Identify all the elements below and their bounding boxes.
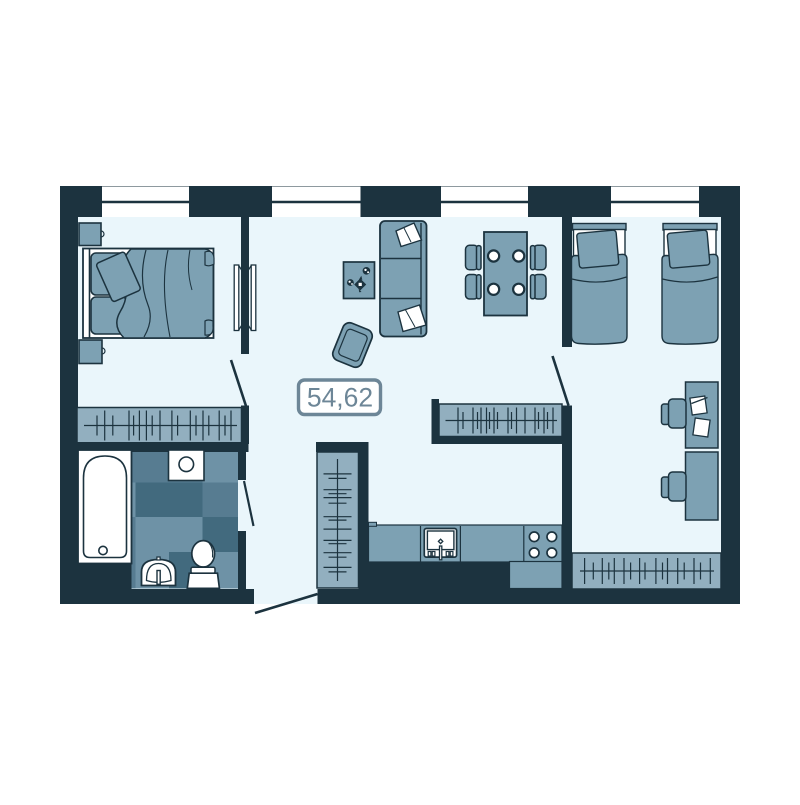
svg-text:54,62: 54,62 <box>307 383 373 413</box>
